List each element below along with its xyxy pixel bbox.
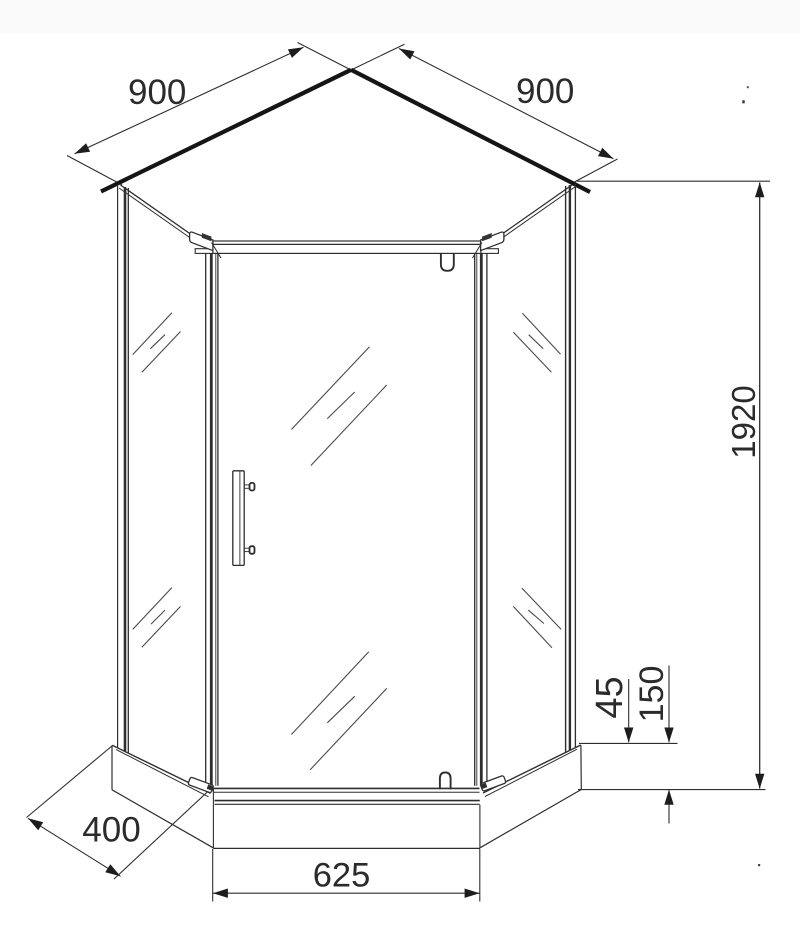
svg-text:150: 150 — [633, 666, 671, 723]
svg-text:1920: 1920 — [725, 385, 762, 458]
svg-text:900: 900 — [516, 72, 574, 111]
svg-text:900: 900 — [128, 73, 186, 112]
svg-text:400: 400 — [82, 811, 140, 850]
svg-text:625: 625 — [313, 857, 371, 895]
svg-text:45: 45 — [589, 676, 631, 718]
